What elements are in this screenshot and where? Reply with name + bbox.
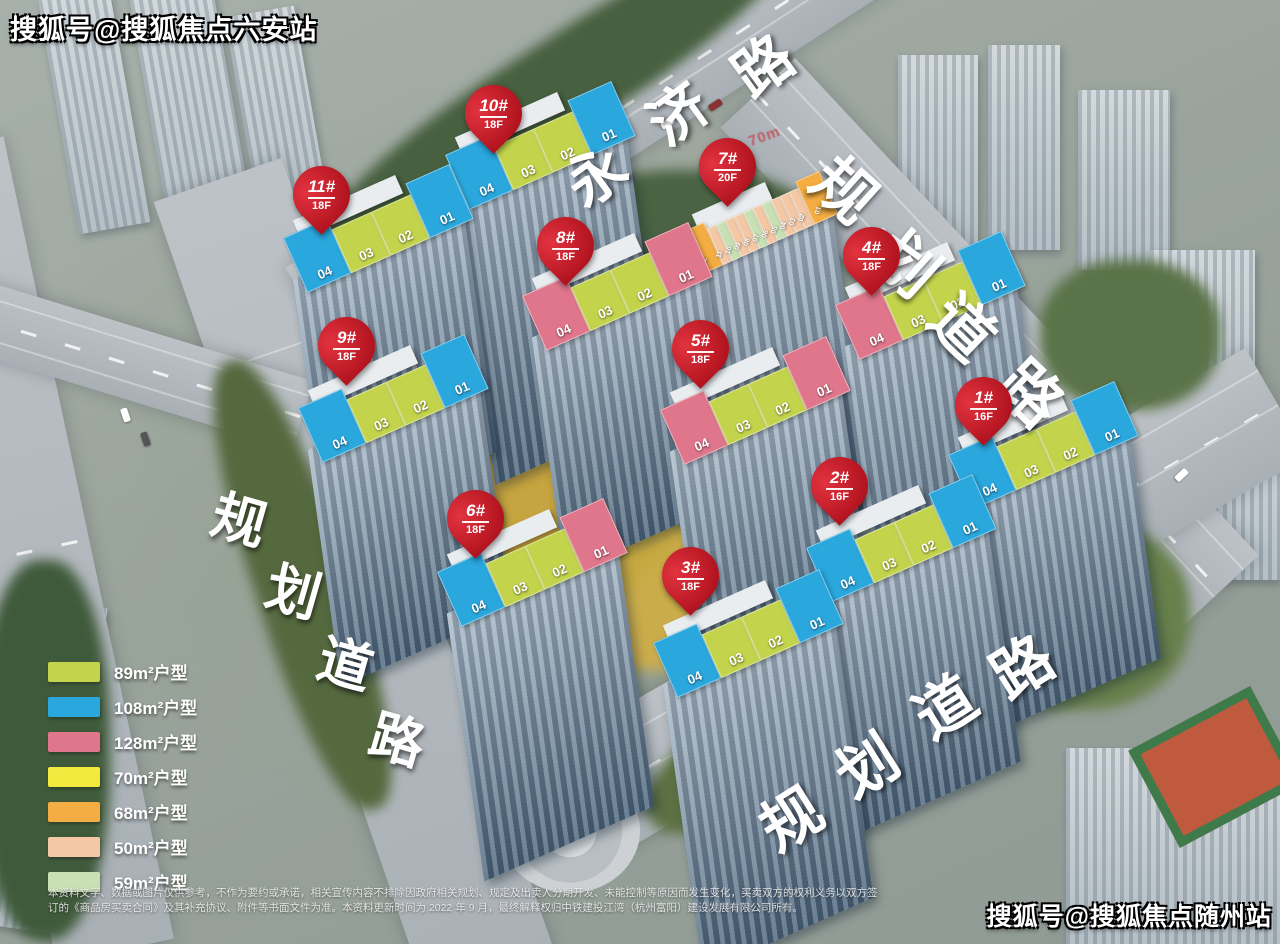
building-number: 3# bbox=[681, 559, 700, 576]
building-number: 1# bbox=[974, 389, 993, 406]
car bbox=[140, 431, 151, 447]
pin-divider bbox=[970, 408, 997, 410]
building-number: 9# bbox=[337, 329, 356, 346]
building-pin-10: 10#18F bbox=[463, 83, 523, 157]
building-number: 5# bbox=[691, 332, 710, 349]
pin-bubble: 8#18F bbox=[525, 205, 606, 286]
building-pin-3: 3#18F bbox=[660, 545, 720, 619]
pin-divider bbox=[552, 248, 579, 250]
pin-inner: 11#18F bbox=[293, 166, 350, 223]
pin-inner: 6#18F bbox=[447, 490, 504, 547]
legend-swatch bbox=[48, 732, 100, 752]
building-number: 2# bbox=[830, 469, 849, 486]
pin-inner: 1#16F bbox=[955, 377, 1012, 434]
background-tower bbox=[1078, 90, 1170, 270]
pin-divider bbox=[308, 197, 335, 199]
pin-bubble: 1#16F bbox=[943, 365, 1024, 446]
building-number: 11# bbox=[307, 178, 334, 195]
pin-inner: 7#20F bbox=[699, 138, 756, 195]
pin-divider bbox=[858, 258, 885, 260]
legend-row: 128m²户型 bbox=[48, 729, 197, 754]
pin-bubble: 3#18F bbox=[650, 535, 731, 616]
building-floors: 18F bbox=[862, 262, 881, 273]
building-floors: 18F bbox=[312, 201, 331, 212]
building-floors: 18F bbox=[337, 352, 356, 363]
building-pin-11: 11#18F bbox=[291, 164, 351, 238]
building-number: 6# bbox=[466, 502, 485, 519]
building-floors: 18F bbox=[466, 525, 485, 536]
pin-divider bbox=[462, 521, 489, 523]
pin-inner: 8#18F bbox=[537, 217, 594, 274]
background-tower bbox=[988, 45, 1060, 250]
building-pin-2: 2#16F bbox=[809, 455, 869, 529]
legend-row: 50m²户型 bbox=[48, 834, 197, 859]
pin-inner: 4#18F bbox=[843, 227, 900, 284]
disclaimer: 本资料文字、数据或图片仅供参考，不作为要约或承诺，相关宣传内容不排除因政府相关规… bbox=[48, 886, 998, 916]
watermark-bottom-right: 搜狐号@搜狐焦点随州站 bbox=[987, 897, 1272, 933]
pin-divider bbox=[677, 578, 704, 580]
building-floors: 20F bbox=[718, 173, 737, 184]
legend-row: 68m²户型 bbox=[48, 799, 197, 824]
building-number: 10# bbox=[479, 97, 507, 114]
building-pin-5: 5#18F bbox=[670, 318, 730, 392]
watermark-top-left: 搜狐号@搜狐焦点六安站 bbox=[10, 8, 317, 47]
car bbox=[120, 407, 131, 423]
pin-inner: 5#18F bbox=[672, 320, 729, 377]
legend-label: 108m²户型 bbox=[114, 694, 197, 719]
legend-swatch bbox=[48, 767, 100, 787]
pin-bubble: 4#18F bbox=[831, 215, 912, 296]
building-number: 7# bbox=[718, 150, 737, 167]
building-pin-9: 9#18F bbox=[316, 315, 376, 389]
building-floors: 18F bbox=[484, 120, 503, 131]
building-floors: 18F bbox=[556, 252, 575, 263]
building-pin-7: 7#20F bbox=[697, 136, 757, 210]
pin-inner: 3#18F bbox=[662, 547, 719, 604]
building-pin-1: 1#16F bbox=[953, 375, 1013, 449]
legend-row: 89m²户型 bbox=[48, 659, 197, 684]
pin-bubble: 11#18F bbox=[281, 154, 362, 235]
building-pin-6: 6#18F bbox=[445, 488, 505, 562]
building-number: 8# bbox=[556, 229, 575, 246]
legend-row: 70m²户型 bbox=[48, 764, 197, 789]
legend-label: 68m²户型 bbox=[114, 799, 188, 824]
legend-swatch bbox=[48, 662, 100, 682]
pin-bubble: 6#18F bbox=[435, 478, 516, 559]
legend-label: 128m²户型 bbox=[114, 729, 197, 754]
pin-divider bbox=[480, 116, 507, 118]
pin-bubble: 9#18F bbox=[306, 305, 387, 386]
legend-swatch bbox=[48, 837, 100, 857]
pin-bubble: 7#20F bbox=[687, 126, 768, 207]
pin-inner: 2#16F bbox=[811, 457, 868, 514]
pin-divider bbox=[826, 488, 853, 490]
site-plan-rendering: 0403020110#18F0403020111#18F121110090807… bbox=[0, 0, 1280, 944]
building-pin-4: 4#18F bbox=[841, 225, 901, 299]
disclaimer-line: 订的《商品房买卖合同》及其补充协议、附件等书面文件为准。本资料更新时间为 202… bbox=[48, 901, 998, 916]
disclaimer-line: 本资料文字、数据或图片仅供参考，不作为要约或承诺，相关宣传内容不排除因政府相关规… bbox=[48, 886, 998, 901]
unit-type-legend: 89m²户型108m²户型128m²户型70m²户型68m²户型50m²户型59… bbox=[48, 659, 197, 904]
building-floors: 18F bbox=[681, 582, 700, 593]
legend-swatch bbox=[48, 802, 100, 822]
pin-divider bbox=[714, 169, 741, 171]
pin-bubble: 2#16F bbox=[799, 445, 880, 526]
building-number: 4# bbox=[862, 239, 881, 256]
legend-label: 70m²户型 bbox=[114, 764, 188, 789]
building-floors: 18F bbox=[691, 355, 710, 366]
legend-label: 50m²户型 bbox=[114, 834, 188, 859]
pin-divider bbox=[687, 351, 714, 353]
pin-inner: 10#18F bbox=[465, 85, 522, 142]
pin-bubble: 5#18F bbox=[660, 308, 741, 389]
pin-bubble: 10#18F bbox=[453, 73, 534, 154]
building-floors: 16F bbox=[974, 412, 993, 423]
legend-row: 108m²户型 bbox=[48, 694, 197, 719]
legend-swatch bbox=[48, 697, 100, 717]
pin-inner: 9#18F bbox=[318, 317, 375, 374]
building-floors: 16F bbox=[830, 492, 849, 503]
building-pin-8: 8#18F bbox=[535, 215, 595, 289]
pin-divider bbox=[333, 348, 360, 350]
legend-label: 89m²户型 bbox=[114, 659, 188, 684]
